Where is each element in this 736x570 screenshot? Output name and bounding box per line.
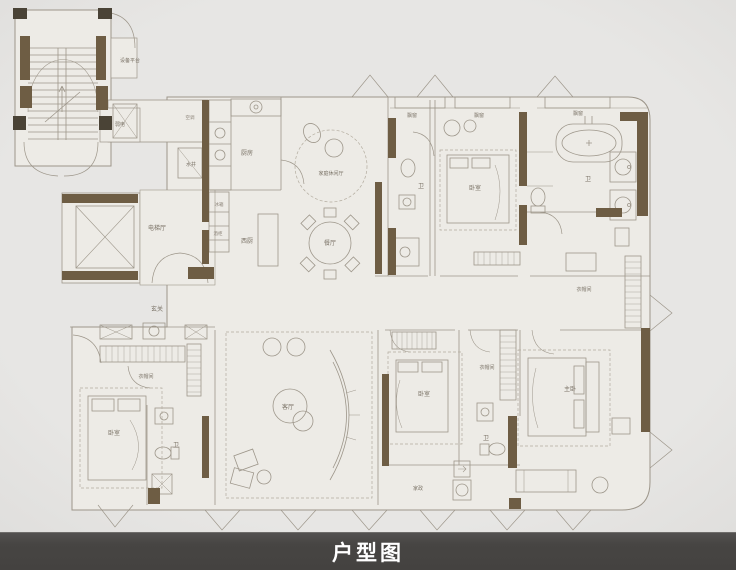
room-label-family-lounge: 家庭休闲厅 — [318, 170, 343, 177]
room-label-bay-window-1: 飘窗 — [407, 112, 417, 119]
page-title: 户型图 — [332, 537, 404, 567]
room-label-housekeeping: 家政 — [413, 485, 423, 492]
room-label-dining-room: 餐厅 — [324, 239, 336, 247]
room-label-weak-electric: 弱电 — [115, 121, 125, 128]
screenshot-root: 设备平台 弱电 空调 水井 厨房 家庭休闲厅 西厨 餐厅 电梯厅 飘窗 飘窗 飘… — [0, 0, 736, 570]
room-label-bay-window-2: 飘窗 — [474, 112, 484, 119]
room-label-west-kitchen: 西厨 — [241, 238, 253, 245]
room-label-master-bedroom: 主卧 — [564, 385, 576, 393]
room-label-cloakroom-2: 衣帽间 — [138, 373, 153, 380]
room-label-bay-window-3: 飘窗 — [573, 110, 583, 117]
room-label-bath-2: 卫 — [173, 442, 179, 449]
room-label-entry: 玄关 — [151, 305, 163, 313]
room-label-master-cloakroom: 衣帽间 — [576, 286, 591, 293]
room-label-wine-cabinet: 酒柜 — [214, 230, 223, 237]
room-label-bedroom-1: 卧室 — [469, 184, 481, 192]
floor-plan: 设备平台 弱电 空调 水井 厨房 家庭休闲厅 西厨 餐厅 电梯厅 飘窗 飘窗 飘… — [0, 0, 736, 533]
room-label-fridge: 冰箱 — [215, 201, 224, 208]
room-label-kitchen: 厨房 — [241, 149, 253, 157]
room-label-water-shaft: 水井 — [186, 161, 196, 168]
room-label-cloakroom-3: 衣帽间 — [479, 364, 494, 371]
room-label-bath-3: 卫 — [483, 435, 489, 442]
title-bar: 户型图 — [0, 532, 736, 570]
room-label-living-room: 客厅 — [282, 403, 294, 411]
room-label-bath-1: 卫 — [418, 183, 424, 190]
room-label-ac-platform: 空调 — [186, 114, 195, 121]
room-label-bedroom-2: 卧室 — [108, 429, 120, 437]
room-label-bedroom-3: 卧室 — [418, 390, 430, 398]
floor-plan-drawing: 设备平台 弱电 空调 水井 厨房 家庭休闲厅 西厨 餐厅 电梯厅 飘窗 飘窗 飘… — [0, 0, 736, 533]
room-label-master-bath: 卫 — [585, 176, 591, 183]
room-label-elevator-hall: 电梯厅 — [148, 224, 166, 232]
room-label-equipment-platform: 设备平台 — [120, 57, 140, 64]
